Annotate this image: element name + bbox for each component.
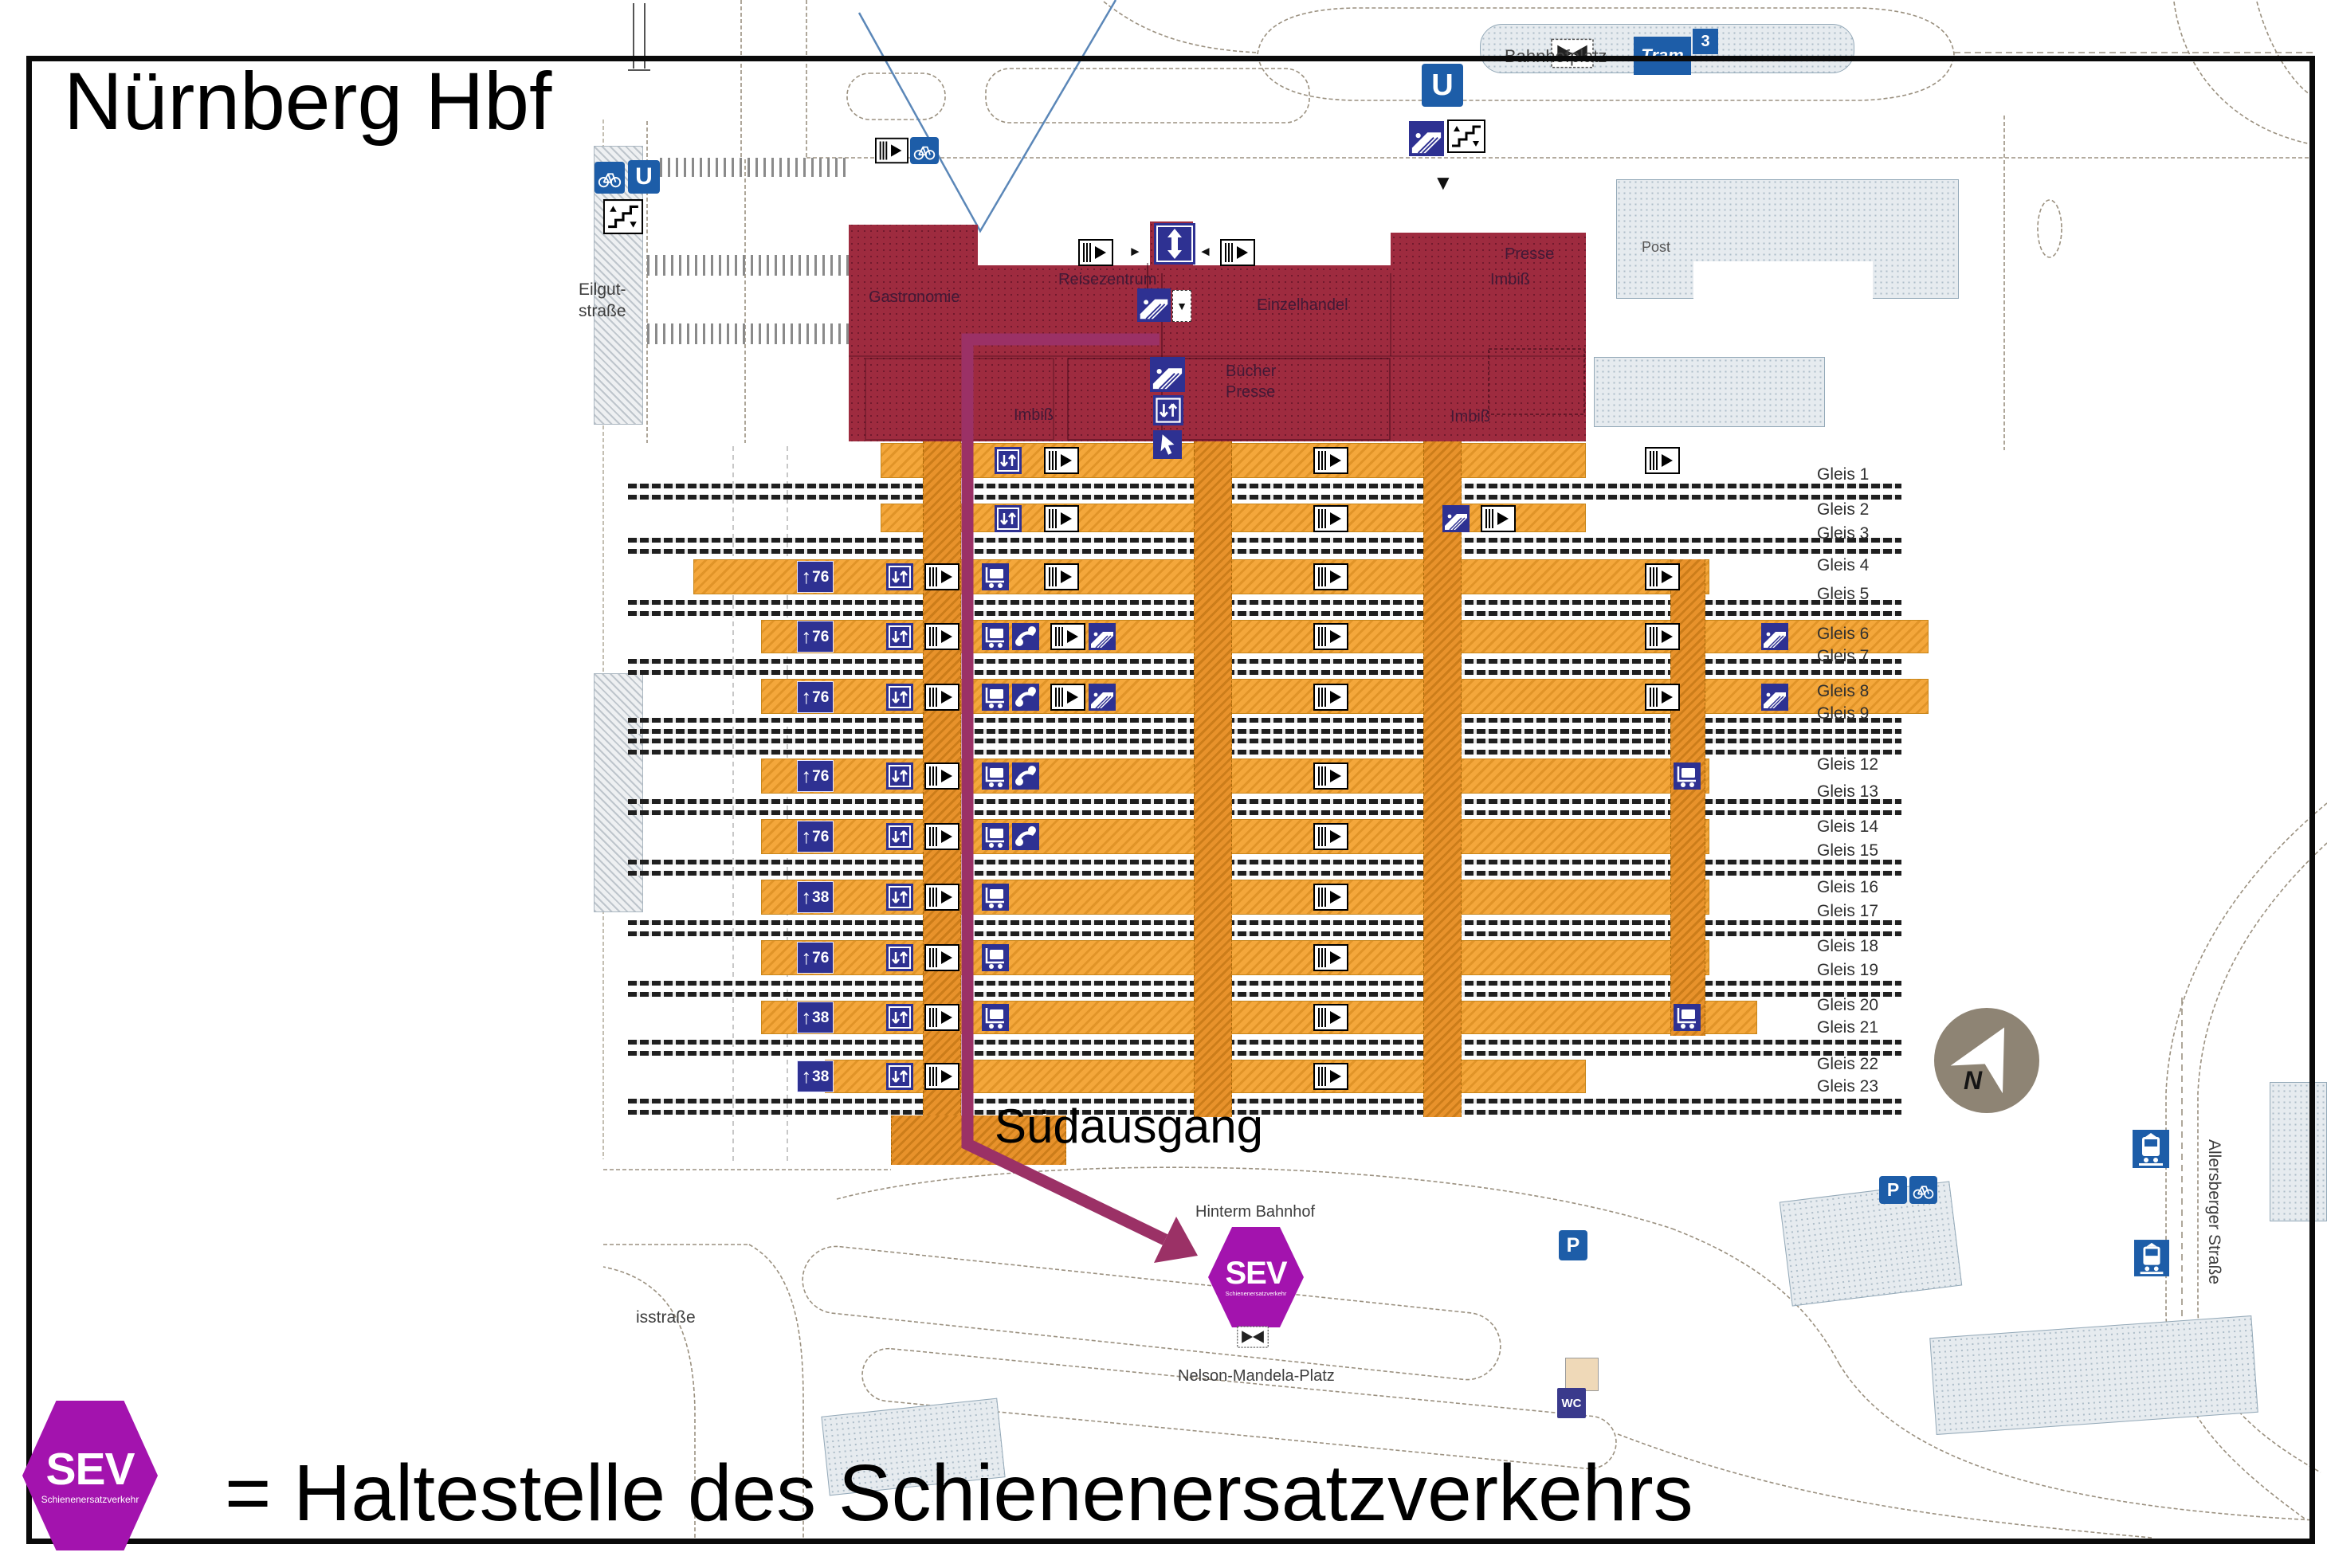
building-label-post: Post — [1642, 239, 1670, 256]
gleis-label: Gleis 5 — [1817, 585, 1869, 604]
luggage-trolley-icon — [982, 1004, 1009, 1031]
left-arrow-icon: ◄ — [1199, 244, 1212, 260]
sev-stop-label: SEV — [1225, 1257, 1286, 1289]
street-label-bahnhofplatz: Bahnhofplatz — [1505, 46, 1607, 67]
gleis-label: Gleis 23 — [1817, 1077, 1878, 1096]
luggage-trolley-icon — [982, 944, 1009, 971]
compass-north-label: N — [1964, 1066, 1982, 1096]
escalator-icon — [1137, 288, 1171, 322]
platform-marker-76: ↑76 — [797, 760, 834, 792]
gleis-label: Gleis 18 — [1817, 937, 1878, 956]
elevator-icon — [995, 447, 1022, 474]
luggage-trolley-icon — [982, 762, 1009, 790]
departure-display-icon — [1313, 505, 1348, 532]
elevator-icon — [1153, 395, 1183, 425]
stairs-icon — [1447, 116, 1485, 156]
legend-sev-sublabel: Schienenersatzverkehr — [41, 1495, 139, 1504]
room-label-imbiss-2: Imbiß — [1014, 406, 1054, 425]
street-label-allersberger-strasse: Allersberger Straße — [2204, 1139, 2223, 1284]
street-label-hinterm-bahnhof: Hinterm Bahnhof — [1195, 1203, 1315, 1221]
platform-marker-76: ↑76 — [797, 561, 834, 593]
down-arrow-icon: ▼ — [1172, 290, 1191, 322]
elevator-icon — [886, 944, 913, 971]
departure-display-icon — [924, 563, 959, 590]
escalator-icon — [1442, 505, 1470, 532]
bicycle-icon — [1909, 1176, 1937, 1204]
gleis-label: Gleis 1 — [1817, 465, 1869, 484]
departure-display-icon — [1645, 447, 1680, 474]
telephone-icon — [1012, 623, 1039, 650]
departure-display-icon — [875, 137, 908, 164]
railway-crossing-icon — [1237, 1326, 1269, 1348]
tram-label: Tram — [1634, 37, 1691, 75]
ubahn-icon: U — [628, 160, 660, 194]
gleis-label: Gleis 15 — [1817, 841, 1878, 860]
gleis-label: Gleis 21 — [1817, 1018, 1878, 1037]
platform-marker-38: ↑38 — [797, 881, 834, 913]
departure-display-icon — [924, 944, 959, 971]
sidewalk-strip — [594, 673, 643, 912]
freight-track-crossing — [647, 255, 851, 276]
track-gleis-3-4 — [628, 537, 1901, 555]
gray-building — [1594, 357, 1825, 427]
down-arrow-icon: ▼ — [1433, 171, 1454, 195]
gleis-label: Gleis 7 — [1817, 647, 1869, 666]
room-label-gastronomie: Gastronomie — [869, 288, 960, 307]
up-arrow-icon: ↑ — [802, 948, 812, 968]
exit-pointer-icon — [1153, 430, 1182, 459]
track-gleis-9-10 — [628, 717, 1901, 735]
street-label-isstrasse: isstraße — [636, 1308, 696, 1327]
elevator-icon — [995, 505, 1022, 532]
page-title: Nürnberg Hbf — [64, 61, 551, 142]
gray-building — [1929, 1315, 2258, 1435]
departure-display-icon — [924, 823, 959, 850]
gray-building — [2270, 1082, 2327, 1221]
corridor-east — [1423, 441, 1462, 1117]
bicycle-icon — [910, 137, 939, 164]
departure-display-icon — [1645, 623, 1680, 650]
departure-display-icon — [924, 762, 959, 790]
sev-route-arrowhead — [1154, 1217, 1198, 1263]
elevator-icon — [886, 1004, 913, 1031]
room-label-reisezentrum: Reisezentrum — [1058, 271, 1156, 289]
telephone-icon — [1012, 762, 1039, 790]
legend-text: = Haltestelle des Schienenersatzverkehrs — [225, 1453, 1693, 1533]
luggage-trolley-icon — [1674, 762, 1701, 790]
departure-display-icon — [1313, 823, 1348, 850]
departure-display-icon — [1645, 684, 1680, 711]
gleis-label: Gleis 2 — [1817, 500, 1869, 519]
gleis-label: Gleis 8 — [1817, 682, 1869, 701]
platform-marker-76: ↑76 — [797, 821, 834, 853]
up-arrow-icon: ↑ — [802, 688, 812, 708]
luggage-trolley-icon — [982, 884, 1009, 911]
departure-display-icon — [1313, 762, 1348, 790]
room-label-imbiss-3: Imbiß — [1450, 408, 1490, 426]
corridor-west — [923, 441, 961, 1165]
departure-display-icon — [1219, 239, 1256, 266]
track-gleis-19-20 — [628, 980, 1901, 998]
escalator-icon — [1089, 623, 1116, 650]
legend-sev-label: SEV — [45, 1447, 134, 1492]
stairs-icon — [602, 199, 644, 234]
departure-display-icon — [1313, 1063, 1348, 1090]
gleis-label: Gleis 9 — [1817, 704, 1869, 723]
departure-display-icon — [1313, 884, 1348, 911]
track-gleis-1-2 — [628, 483, 1901, 500]
platform-marker-38: ↑38 — [797, 1060, 834, 1092]
departure-display-icon — [1313, 563, 1348, 590]
departure-display-icon — [1050, 684, 1085, 711]
telephone-icon — [1012, 684, 1039, 711]
sev-stop-marker: SEV Schienenersatzverkehr — [1208, 1227, 1304, 1327]
corridor-center — [1194, 441, 1232, 1117]
departure-display-icon — [1044, 447, 1079, 474]
station-map-page: ↑76 ↑76 ↑76 ↑76 ↑76 ↑38 ↑76 ↑38 ↑38 — [0, 0, 2327, 1568]
track-gleis-5-6 — [628, 599, 1901, 617]
up-arrow-icon: ↑ — [802, 766, 812, 786]
up-arrow-icon: ↑ — [802, 1067, 812, 1087]
luggage-trolley-icon — [982, 823, 1009, 850]
room-label-presse-2: Presse — [1226, 383, 1275, 402]
platform-marker-76: ↑76 — [797, 621, 834, 653]
right-arrow-icon: ► — [1128, 244, 1142, 260]
gleis-label: Gleis 14 — [1817, 817, 1878, 837]
luggage-trolley-icon — [982, 623, 1009, 650]
up-arrow-icon: ↑ — [802, 627, 812, 647]
up-arrow-icon: ↑ — [802, 888, 812, 907]
elevator-icon — [886, 823, 913, 850]
gleis-label: Gleis 13 — [1817, 782, 1878, 802]
street-label-eilgutstrasse: Eilgut- straße — [579, 279, 626, 323]
departure-display-icon — [924, 684, 959, 711]
room-label-imbiss: Imbiß — [1490, 271, 1530, 289]
track-gleis-7-8 — [628, 658, 1901, 676]
compass-rose: N — [1933, 1007, 2040, 1114]
parking-icon: P — [1559, 1230, 1587, 1260]
platform-marker-76: ↑76 — [797, 942, 834, 974]
track-gleis-13-14 — [628, 798, 1901, 816]
departure-display-icon — [924, 1063, 959, 1090]
escalator-icon — [1150, 357, 1185, 392]
gleis-label: Gleis 19 — [1817, 961, 1878, 980]
departure-display-icon — [924, 884, 959, 911]
departure-display-icon — [1313, 623, 1348, 650]
departure-display-icon — [1645, 563, 1680, 590]
street-label-nelson-mandela-platz: Nelson-Mandela-Platz — [1178, 1367, 1335, 1386]
gleis-label: Gleis 22 — [1817, 1055, 1878, 1074]
up-arrow-icon: ↑ — [802, 1008, 812, 1028]
bicycle-icon — [595, 162, 625, 194]
elevator-icon — [886, 884, 913, 911]
tram-line-number: 3 — [1693, 29, 1718, 54]
elevator-icon — [886, 563, 913, 590]
ubahn-icon: U — [1422, 64, 1463, 107]
kiosk-building — [1565, 1358, 1599, 1391]
track-gleis-23 — [628, 1098, 1901, 1115]
departure-display-icon — [1044, 505, 1079, 532]
room-label-einzelhandel: Einzelhandel — [1257, 296, 1348, 315]
departure-display-icon — [1044, 563, 1079, 590]
compass-arrow-icon — [1933, 1007, 2040, 1114]
departure-display-icon — [1313, 447, 1348, 474]
track-gleis-11-12 — [628, 738, 1901, 755]
up-arrow-icon: ↑ — [802, 567, 812, 587]
platform-marker-76: ↑76 — [797, 681, 834, 713]
elevator-icon — [886, 1063, 913, 1090]
room-label-presse: Presse — [1505, 245, 1554, 264]
track-gleis-21-22 — [628, 1039, 1901, 1056]
wc-icon: WC — [1557, 1388, 1586, 1418]
departure-display-icon — [1050, 623, 1085, 650]
platform-gleis-1 — [881, 443, 1586, 478]
freight-track-crossing — [647, 323, 851, 344]
parking-icon: P — [1879, 1176, 1907, 1204]
departure-display-icon — [1313, 684, 1348, 711]
gleis-label: Gleis 12 — [1817, 755, 1878, 774]
departure-display-icon — [924, 623, 959, 650]
escalator-icon — [1761, 623, 1788, 650]
ubahn-tunnel-line — [859, 0, 1116, 231]
elevator-icon — [886, 623, 913, 650]
telephone-icon — [1012, 823, 1039, 850]
room-label-buecher: Bücher — [1226, 363, 1276, 381]
legend-sev-marker: SEV Schienenersatzverkehr — [22, 1401, 158, 1550]
south-exit-label: Südausgang — [995, 1103, 1263, 1151]
escalator-icon — [1409, 120, 1444, 158]
departure-display-icon — [924, 1004, 959, 1031]
luggage-trolley-icon — [982, 684, 1009, 711]
departure-display-icon — [1313, 944, 1348, 971]
gleis-label: Gleis 17 — [1817, 902, 1878, 921]
elevator-icon — [886, 762, 913, 790]
track-gleis-15-16 — [628, 859, 1901, 876]
platform-marker-38: ↑38 — [797, 1002, 834, 1033]
gleis-label: Gleis 16 — [1817, 878, 1878, 897]
luggage-trolley-icon — [1674, 1004, 1701, 1031]
escalator-icon — [1761, 684, 1788, 711]
sev-stop-sublabel: Schienenersatzverkehr — [1226, 1291, 1287, 1297]
main-entrance-elevator-icon — [1154, 223, 1195, 265]
elevator-icon — [886, 684, 913, 711]
freight-track-crossing — [660, 158, 851, 177]
gleis-label: Gleis 3 — [1817, 524, 1869, 543]
gleis-label: Gleis 4 — [1817, 556, 1869, 575]
luggage-trolley-icon — [982, 563, 1009, 590]
departure-display-icon — [1481, 505, 1516, 532]
track-gleis-17-18 — [628, 919, 1901, 937]
departure-display-icon — [1077, 239, 1114, 266]
gleis-label: Gleis 20 — [1817, 996, 1878, 1015]
gleis-label: Gleis 6 — [1817, 625, 1869, 644]
up-arrow-icon: ↑ — [802, 827, 812, 847]
tram-stop-icon — [2134, 1240, 2169, 1276]
departure-display-icon — [1313, 1004, 1348, 1031]
escalator-icon — [1089, 684, 1116, 711]
tram-stop-icon — [2133, 1130, 2169, 1168]
